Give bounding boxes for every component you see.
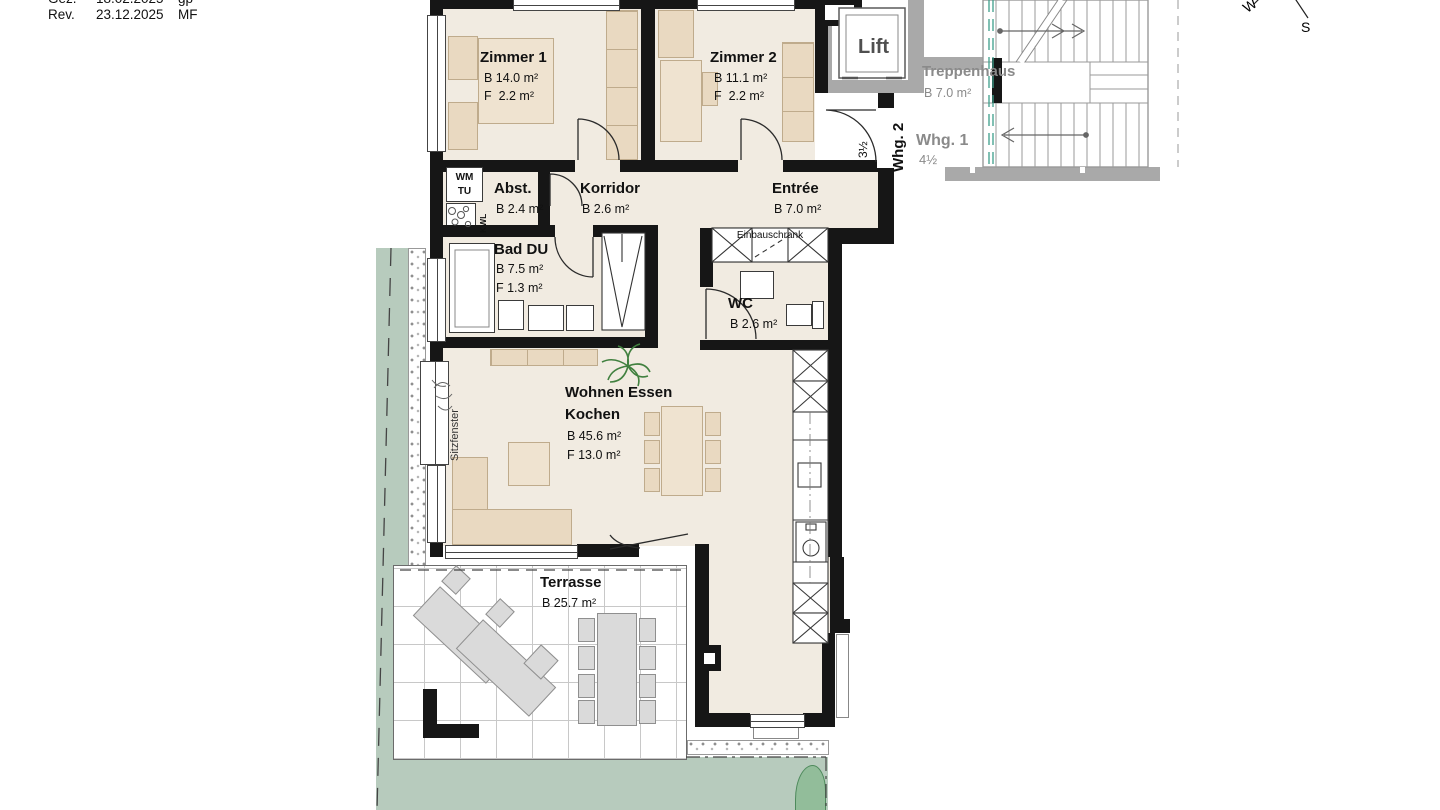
terrasse-label: Terrasse: [540, 574, 601, 591]
korridor-area-b: B 2.6 m²: [582, 202, 629, 216]
nook-floor: [700, 544, 830, 716]
shower: [449, 243, 495, 333]
window: [750, 714, 805, 728]
drawn-date: 18.02.2025: [96, 0, 178, 6]
terrace-chair: [639, 646, 656, 670]
wall-abst-divider: [538, 172, 550, 227]
wohnen-area-f: F 13.0 m²: [567, 448, 621, 462]
wall-living-bottom: [577, 544, 639, 557]
terrace-chair: [639, 674, 656, 698]
wall-entree-corner: [828, 228, 894, 244]
wall-nook-right: [830, 557, 844, 619]
whg1-label: Whg. 1: [916, 132, 968, 150]
terrace-chair: [578, 700, 595, 724]
washbasin: [528, 305, 564, 331]
toilet: [498, 300, 524, 330]
whg2-rooms: 3½: [856, 141, 870, 158]
lift-wall: [818, 80, 924, 93]
window: [427, 15, 446, 152]
korridor-label: Korridor: [580, 180, 640, 197]
exterior-step: [836, 634, 849, 718]
title-block-row-drawn: Gez. 18.02.2025 gp: [48, 0, 193, 6]
title-block-row-revision: Rev. 23.12.2025 MF: [48, 7, 198, 22]
terrace-table: [597, 613, 637, 726]
kwl-label: KWL: [478, 214, 488, 233]
drawn-initials: gp: [178, 0, 193, 6]
revision-date: 23.12.2025: [96, 7, 178, 22]
revision-label: Rev.: [48, 7, 96, 22]
floor-plan: Gez. 18.02.2025 gp Rev. 23.12.2025 MF: [0, 0, 1440, 810]
terrace-wall: [423, 724, 479, 738]
zimmer2-area-b: B 11.1 m²: [714, 71, 767, 85]
wohnen-label-line1: Wohnen Essen: [565, 384, 672, 401]
wardrobe: [782, 42, 814, 142]
wall-bad-right: [645, 225, 658, 348]
wall-nook-right: [830, 619, 850, 633]
zimmer1-label: Zimmer 1: [480, 49, 547, 66]
lawn-strip-bottom: [376, 757, 828, 810]
wc-label: WC: [728, 295, 753, 312]
pillar-niche: [704, 653, 715, 664]
terrasse-area-b: B 25.7 m²: [542, 596, 596, 610]
lift-label: Lift: [858, 36, 889, 59]
wall-nook-bottom: [695, 713, 750, 727]
einbauschrank-label: Einbauschrank: [712, 230, 828, 241]
wall-wc-bottom: [700, 340, 828, 350]
window: [445, 545, 578, 559]
nightstand: [448, 102, 478, 150]
zimmer1-area-f: F 2.2 m²: [484, 89, 534, 103]
wall-right-outer: [828, 244, 842, 557]
washer-dryer: WM TU: [446, 167, 483, 202]
drawn-label: Gez.: [48, 0, 96, 6]
bad-label: Bad DU: [494, 241, 548, 258]
window: [513, 0, 620, 11]
window: [697, 0, 795, 11]
terrace-chair: [578, 646, 595, 670]
dining-chair: [705, 412, 721, 436]
compass: W S: [1240, 0, 1311, 35]
dresser: [658, 10, 694, 58]
staircase: [970, 0, 1178, 173]
whg2-label: Whg. 2: [890, 123, 907, 172]
exterior-step: [753, 727, 799, 739]
wall-bad-top: [430, 225, 555, 237]
dryer-label: TU: [458, 185, 471, 199]
washbasin: [566, 305, 594, 331]
nightstand: [448, 36, 478, 80]
zimmer2-label: Zimmer 2: [710, 49, 777, 66]
wc-area-b: B 2.6 m²: [730, 317, 777, 331]
dining-chair: [705, 468, 721, 492]
terrace-chair: [639, 618, 656, 642]
wall-hall-top: [783, 160, 892, 172]
wall-bad-bottom: [430, 337, 658, 348]
dining-table: [661, 406, 703, 496]
sideboard: [490, 349, 598, 366]
gravel-strip-bottom: [687, 740, 829, 755]
bad-area-b: B 7.5 m²: [496, 262, 543, 276]
revision-initials: MF: [178, 7, 198, 22]
wc-toilet: [786, 304, 812, 326]
wall-nook-left: [695, 544, 709, 727]
entree-label: Entrée: [772, 180, 819, 197]
window: [427, 465, 446, 543]
wc-cistern: [812, 301, 824, 329]
sitzfenster-label: Sitzfenster: [449, 409, 461, 461]
zimmer2-area-f: F 2.2 m²: [714, 89, 764, 103]
wall-entry-right: [878, 168, 894, 228]
bed: [660, 60, 702, 142]
armchair: [508, 442, 550, 486]
terrace-chair: [639, 700, 656, 724]
treppenhaus-area-b: B 7.0 m²: [924, 86, 971, 100]
whg1-rooms: 4½: [919, 152, 937, 167]
dining-chair: [644, 412, 660, 436]
terrace-chair: [578, 618, 595, 642]
bay-window-sitzfenster: [420, 361, 449, 465]
window: [427, 258, 446, 342]
dining-chair: [644, 440, 660, 464]
abstellraum-area-b: B 2.4 m²: [496, 202, 543, 216]
abstellraum-label: Abst.: [494, 180, 532, 197]
wohnen-label-line2: Kochen: [565, 406, 620, 423]
terrace-chair: [578, 674, 595, 698]
dining-chair: [705, 440, 721, 464]
wall-bedroom-divider: [641, 0, 655, 160]
sofa: [452, 509, 572, 545]
wardrobe: [606, 10, 638, 160]
zimmer1-area-b: B 14.0 m²: [484, 71, 538, 85]
wall-hall-top: [620, 160, 738, 172]
dining-chair: [644, 468, 660, 492]
washer-label: WM: [456, 171, 474, 185]
bad-area-f: F 1.3 m²: [496, 281, 543, 295]
wall-nook-right: [822, 633, 835, 727]
duct-opening: [825, 5, 854, 20]
compass-west-label: W: [1240, 0, 1261, 16]
wohnen-area-b: B 45.6 m²: [567, 429, 621, 443]
treppenhaus-label: Treppenhaus: [922, 63, 1015, 80]
entree-area-b: B 7.0 m²: [774, 202, 821, 216]
compass-south-label: S: [1301, 19, 1310, 35]
stair-wall: [945, 167, 1160, 181]
wall-entry-right: [878, 93, 894, 108]
